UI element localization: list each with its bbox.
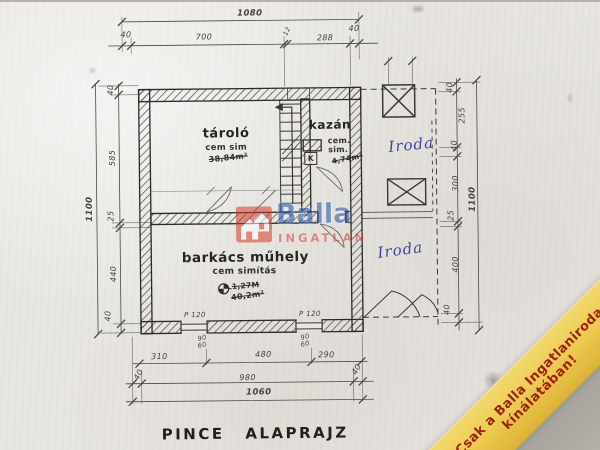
scanned-floorplan-page: 1080 40 700 12 288 40 1100 40 585 25 440… (0, 0, 600, 450)
dim-right-25: 25 (446, 210, 455, 221)
dim-right-300: 300 (451, 175, 460, 192)
dim-bottom-overall: 1060 (246, 387, 271, 397)
room-label-storage: tároló (203, 126, 250, 141)
dim-top-40a: 40 (120, 30, 131, 39)
dim-bottom-310: 310 (151, 352, 168, 361)
dim-top-700: 700 (196, 32, 213, 41)
room-finish-workshop: cem simítás (212, 266, 276, 277)
dim-top-288: 288 (317, 33, 334, 42)
stairs-group (275, 99, 302, 212)
parapet-label-right: P 120 (299, 310, 321, 318)
room-label-boiler: kazán (309, 117, 351, 131)
level-point-icon (216, 281, 232, 297)
dim-right-400: 400 (451, 256, 460, 273)
room-finish-boiler-2: sim. (328, 145, 348, 154)
dim-top-overall: 1080 (237, 8, 262, 18)
drawing-title: PINCE ALAPRAJZ (162, 424, 349, 444)
room-label-workshop: barkács műhely (182, 249, 309, 266)
room-finish-boiler-1: cem. (328, 136, 351, 145)
watermark-brand-text: Balla (276, 198, 352, 230)
dim-bottom-480: 480 (255, 350, 272, 359)
dim-right-255: 255 (457, 107, 466, 124)
dim-top-40b: 40 (348, 24, 359, 33)
parapet-label-left: P 120 (184, 311, 206, 319)
dim-left-40a: 40 (106, 84, 115, 95)
dim-right-40c: 40 (442, 304, 451, 315)
dim-left-585: 585 (108, 150, 117, 167)
dim-bottom-290: 290 (318, 350, 335, 359)
dim-right-overall: 1100 (468, 187, 478, 212)
watermark-sub-text: INGATLAN (278, 230, 367, 245)
exterior-zone-group (361, 85, 439, 330)
balla-logo-icon (236, 206, 272, 242)
boiler-symbol: K (304, 152, 317, 165)
dim-left-25: 25 (106, 210, 115, 221)
dim-right-40b: 40 (450, 140, 459, 151)
dim-left-overall: 1100 (85, 197, 95, 222)
dim-right-40a: 40 (445, 82, 454, 93)
dim-left-40b: 40 (103, 310, 112, 321)
dim-bottom-980: 980 (239, 373, 256, 382)
dim-left-440: 440 (109, 266, 118, 283)
balla-watermark: Balla INGATLAN (236, 205, 366, 246)
